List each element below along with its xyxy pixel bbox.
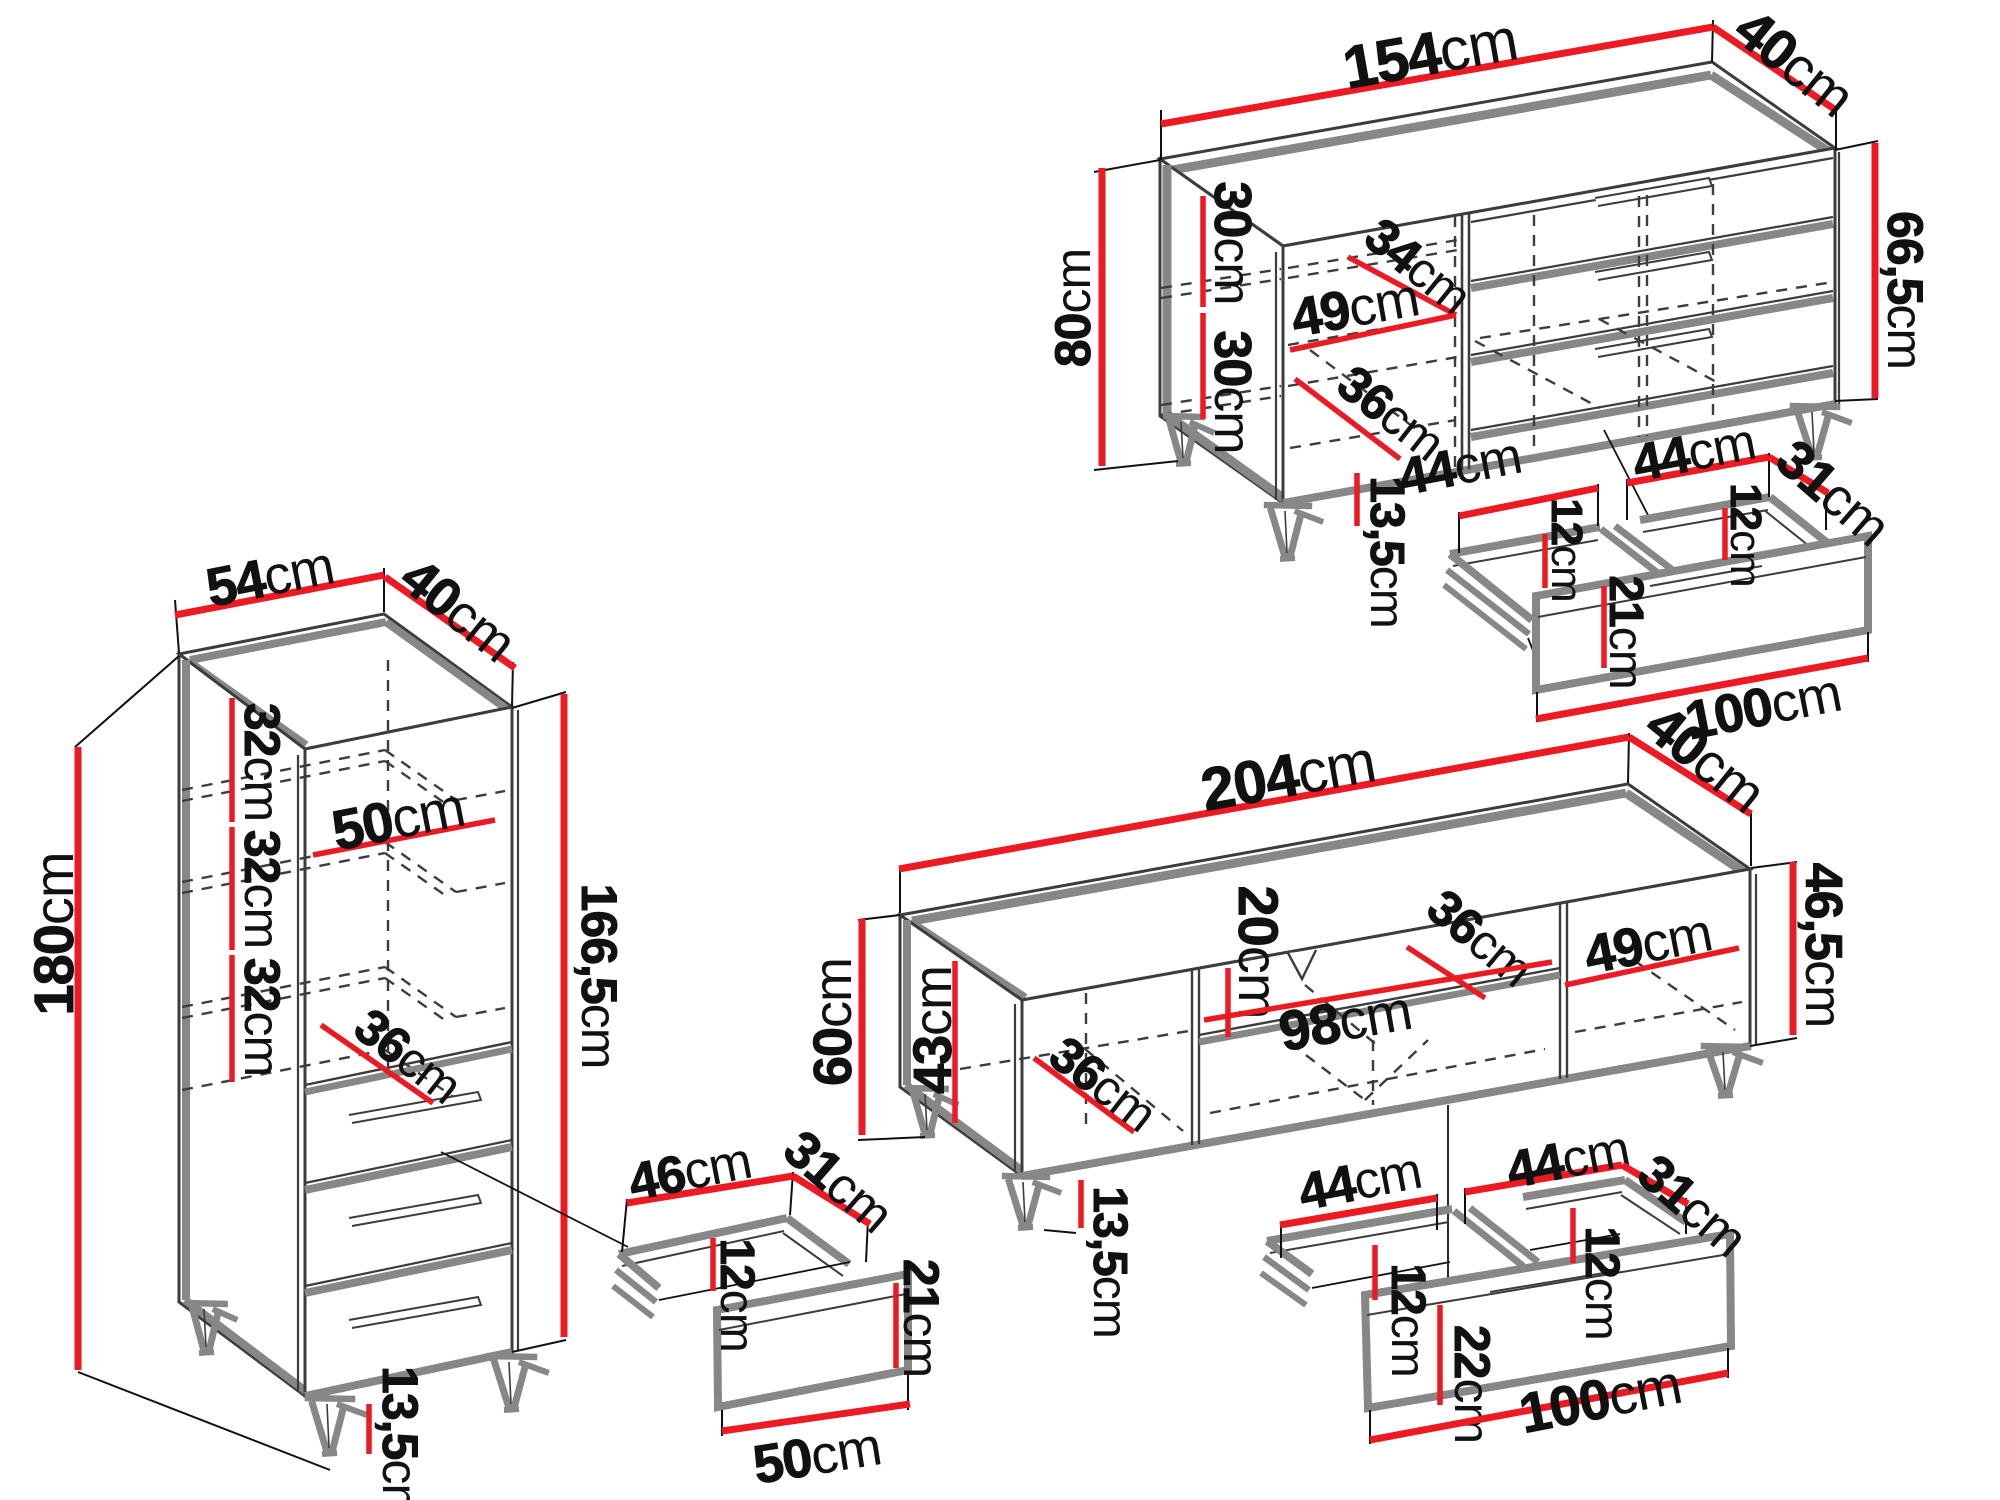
- svg-text:13,5cm: 13,5cm: [372, 1366, 428, 1500]
- svg-text:12cm: 12cm: [1722, 483, 1771, 587]
- svg-text:32cm: 32cm: [234, 958, 290, 1076]
- svg-text:21cm: 21cm: [1600, 575, 1653, 688]
- svg-text:12cm: 12cm: [711, 1238, 764, 1351]
- svg-text:12cm: 12cm: [1576, 1226, 1629, 1339]
- svg-text:66,5cm: 66,5cm: [1877, 211, 1933, 369]
- svg-text:80cm: 80cm: [1045, 249, 1101, 367]
- svg-text:12cm: 12cm: [1543, 498, 1592, 602]
- svg-text:12cm: 12cm: [1382, 1263, 1435, 1376]
- svg-text:32cm: 32cm: [234, 830, 290, 948]
- svg-text:30cm: 30cm: [1203, 181, 1261, 304]
- svg-text:21cm: 21cm: [893, 1259, 949, 1377]
- svg-text:60cm: 60cm: [803, 958, 863, 1086]
- svg-text:13,5cm: 13,5cm: [1084, 1186, 1137, 1337]
- svg-text:166,5cm: 166,5cm: [571, 884, 627, 1069]
- svg-text:46,5cm: 46,5cm: [1794, 863, 1852, 1028]
- svg-text:180cm: 180cm: [22, 852, 85, 1015]
- svg-text:43cm: 43cm: [903, 966, 963, 1094]
- svg-text:32cm: 32cm: [234, 703, 290, 821]
- svg-text:30cm: 30cm: [1203, 330, 1261, 453]
